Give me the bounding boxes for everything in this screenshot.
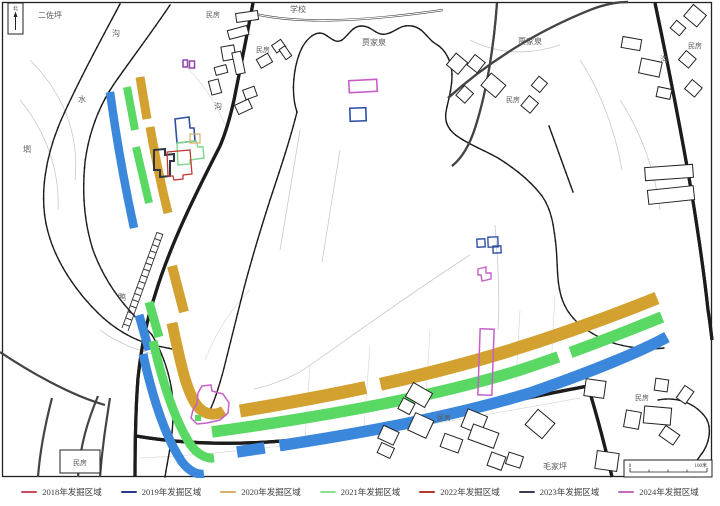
legend-item-2021: 2021年发掘区域 <box>320 486 401 498</box>
label-minfang-topleft: 民房 <box>206 10 220 19</box>
label-erzuoping: 二佐坪 <box>38 10 62 20</box>
legend-swatch-2020 <box>220 491 236 493</box>
marker-green-corner-blob <box>195 415 201 421</box>
legend-label-2020: 2020年发掘区域 <box>241 486 301 498</box>
legend-item-2022: 2022年发掘区域 <box>419 486 500 498</box>
scale-bar: 0 100米 <box>624 460 712 477</box>
label-school: 学校 <box>290 4 306 14</box>
legend-label-2022: 2022年发掘区域 <box>440 486 500 498</box>
legend-label-2024: 2024年发掘区域 <box>639 486 699 498</box>
excavation-map-page: 北 0 100米 二佐坪 民房 学校 贾家泉 <box>0 0 720 506</box>
legend-item-2023: 2023年发掘区域 <box>519 486 600 498</box>
north-label: 北 <box>13 5 18 12</box>
legend-label-2021: 2021年发掘区域 <box>341 486 401 498</box>
label-minfang-topright: 民房 <box>688 41 702 50</box>
label-minfang-bottomcenter: 民房 <box>437 413 451 422</box>
label-gou-right: 沟 <box>660 54 668 64</box>
legend-item-2018: 2018年发掘区域 <box>21 486 102 498</box>
label-shui: 水 <box>78 94 86 104</box>
legend-swatch-2018 <box>21 491 37 493</box>
legend-swatch-2023 <box>519 491 535 493</box>
legend-swatch-2021 <box>320 491 336 493</box>
legend-label-2019: 2019年发掘区域 <box>142 486 202 498</box>
label-jiajiaquan-right: 贾家泉 <box>518 36 542 46</box>
legend-label-2018: 2018年发掘区域 <box>42 486 102 498</box>
label-maojiaping: 毛家坪 <box>543 461 567 471</box>
site-map-svg: 北 0 100米 二佐坪 民房 学校 贾家泉 <box>0 0 720 478</box>
label-minfang-box: 民房 <box>73 458 87 467</box>
label-minfang-road: 民房 <box>256 45 270 54</box>
north-arrow: 北 <box>8 3 23 34</box>
legend-label-2023: 2023年发掘区域 <box>540 486 600 498</box>
label-minfang-bottomright: 民房 <box>635 393 649 402</box>
legend-item-2024: 2024年发掘区域 <box>618 486 699 498</box>
legend: 2018年发掘区域 2019年发掘区域 2020年发掘区域 2021年发掘区域 … <box>0 478 720 506</box>
label-gou-topleft: 沟 <box>112 28 120 38</box>
legend-item-2019: 2019年发掘区域 <box>121 486 202 498</box>
legend-swatch-2022 <box>419 491 435 493</box>
legend-item-2020: 2020年发掘区域 <box>220 486 301 498</box>
legend-swatch-2024 <box>618 491 634 493</box>
label-gou-mid: 沟 <box>214 101 222 111</box>
label-ya: 鸭 <box>118 292 126 302</box>
label-jiajiaquan-left: 贾家泉 <box>362 37 386 47</box>
label-minfang-center: 民房 <box>506 95 520 104</box>
scale-max: 100米 <box>694 462 707 469</box>
legend-swatch-2019 <box>121 491 137 493</box>
map-canvas: 北 0 100米 二佐坪 民房 学校 贾家泉 <box>0 0 720 478</box>
label-ao: 垇 <box>23 144 31 154</box>
